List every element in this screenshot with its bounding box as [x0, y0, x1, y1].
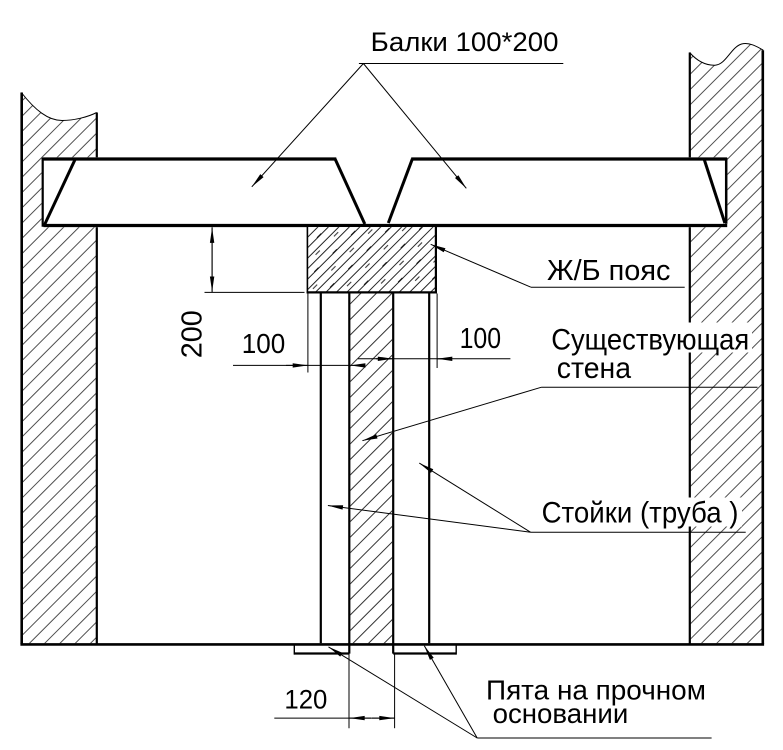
- svg-text:Балки 100*200: Балки 100*200: [371, 27, 559, 57]
- svg-text:100: 100: [242, 328, 285, 359]
- svg-text:200: 200: [177, 310, 209, 358]
- svg-text:120: 120: [284, 684, 327, 714]
- svg-text:Стойки (труба ): Стойки (труба ): [542, 497, 739, 530]
- svg-text:100: 100: [460, 323, 502, 355]
- svg-text:Ж/Б пояс: Ж/Б пояс: [547, 255, 670, 287]
- svg-text:основании: основании: [493, 698, 629, 729]
- svg-text:стена: стена: [557, 352, 631, 385]
